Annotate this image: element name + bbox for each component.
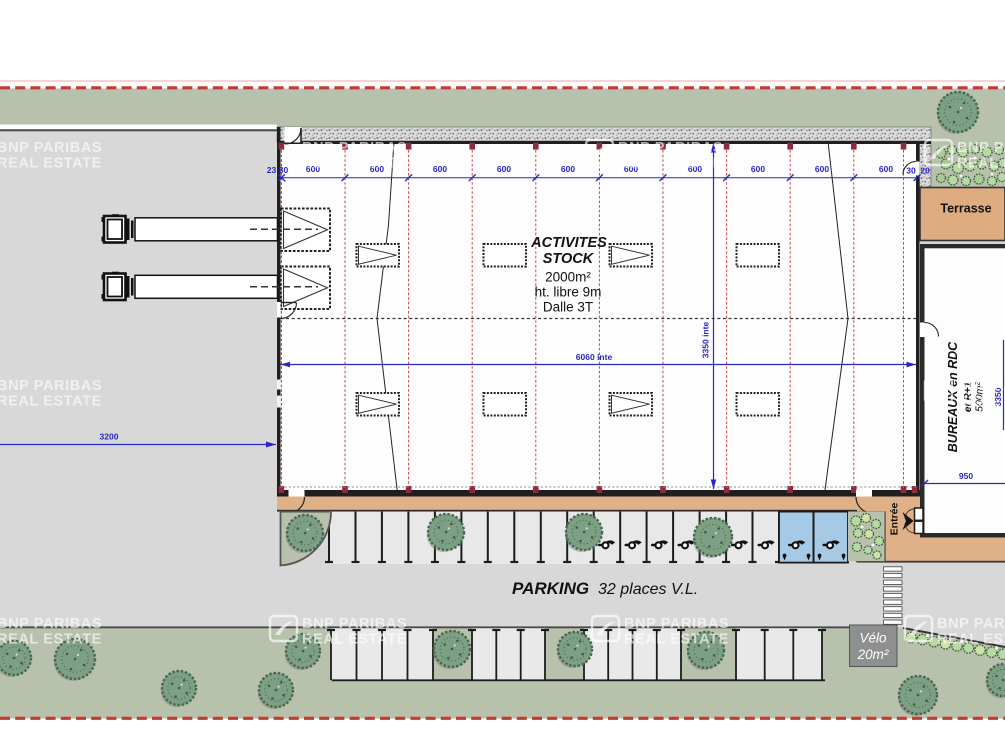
svg-text:ACTIVITES: ACTIVITES (530, 235, 607, 251)
svg-text:600: 600 (815, 164, 829, 174)
svg-text:30: 30 (906, 166, 916, 176)
svg-text:3200: 3200 (100, 432, 119, 442)
svg-text:ht. libre 9m: ht. libre 9m (535, 285, 602, 300)
svg-text:23: 23 (267, 165, 277, 175)
svg-text:32 places V.L.: 32 places V.L. (598, 581, 698, 598)
svg-text:20: 20 (920, 166, 930, 176)
svg-text:Dalle 3T: Dalle 3T (543, 300, 593, 315)
svg-text:3350 inte: 3350 inte (701, 322, 711, 359)
svg-text:Entrée: Entrée (889, 503, 901, 536)
svg-text:Terrasse: Terrasse (940, 202, 991, 216)
svg-text:600: 600 (879, 164, 893, 174)
svg-text:600: 600 (751, 164, 765, 174)
svg-text:20m²: 20m² (857, 647, 889, 662)
svg-text:6060 inte: 6060 inte (576, 352, 613, 362)
svg-text:600: 600 (497, 164, 511, 174)
svg-text:2000m²: 2000m² (545, 270, 591, 285)
svg-text:600: 600 (433, 164, 447, 174)
svg-text:STOCK: STOCK (543, 251, 595, 267)
svg-text:30: 30 (279, 165, 289, 175)
svg-text:Vélo: Vélo (859, 631, 887, 646)
svg-text:950: 950 (959, 471, 973, 481)
svg-text:PARKING: PARKING (512, 579, 589, 598)
svg-text:600: 600 (561, 164, 575, 174)
